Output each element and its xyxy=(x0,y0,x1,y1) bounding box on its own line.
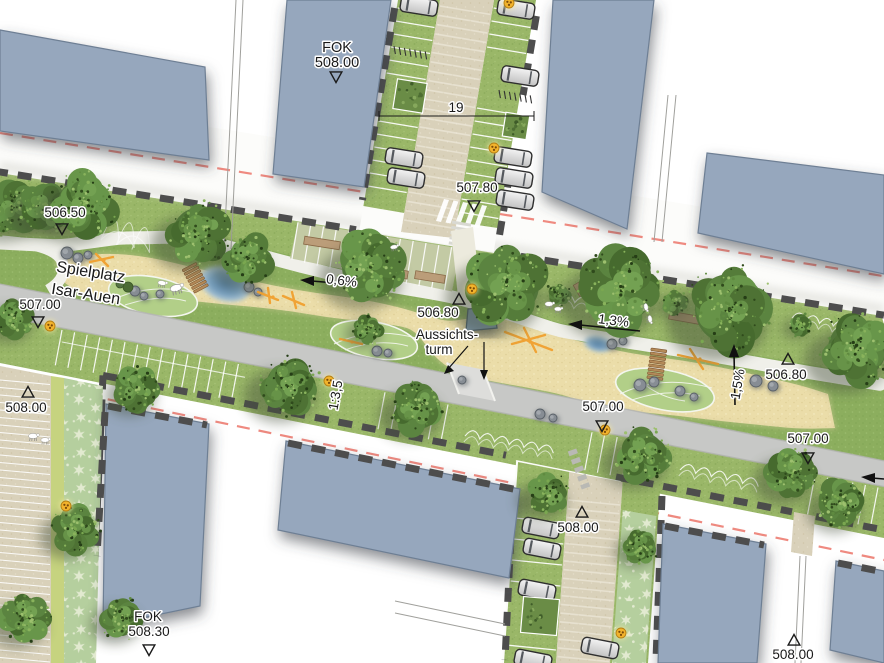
svg-text:507.00: 507.00 xyxy=(787,431,828,446)
svg-text:506.80: 506.80 xyxy=(417,305,458,320)
svg-text:FOK: FOK xyxy=(134,609,162,624)
svg-text:508.00: 508.00 xyxy=(557,520,598,535)
svg-text:508.00: 508.00 xyxy=(772,647,813,662)
svg-text:508.30: 508.30 xyxy=(128,624,169,639)
svg-text:507.80: 507.80 xyxy=(456,180,497,195)
svg-text:506.80: 506.80 xyxy=(765,367,806,382)
svg-text:FOK: FOK xyxy=(322,40,352,56)
svg-text:19: 19 xyxy=(448,100,463,115)
svg-text:506.50: 506.50 xyxy=(44,205,85,220)
svg-text:turm: turm xyxy=(426,342,453,357)
svg-text:507.00: 507.00 xyxy=(582,399,623,414)
svg-text:508.00: 508.00 xyxy=(5,400,46,415)
svg-text:Aussichts-: Aussichts- xyxy=(416,327,478,342)
svg-text:508.00: 508.00 xyxy=(315,55,359,71)
svg-text:507.00: 507.00 xyxy=(19,297,60,312)
